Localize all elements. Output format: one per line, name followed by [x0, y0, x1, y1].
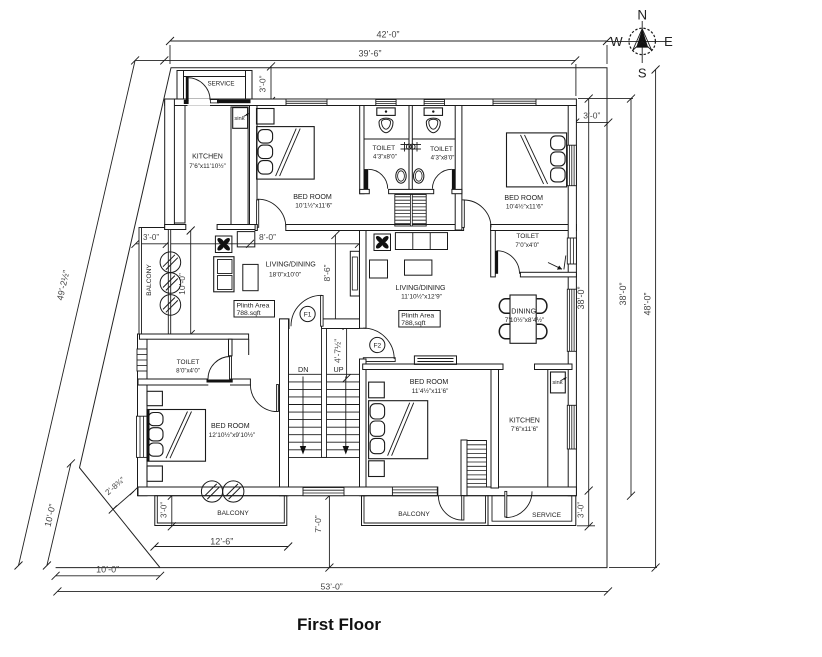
svg-text:7’-0”: 7’-0” [313, 515, 323, 532]
svg-text:7’6”x11’10½”: 7’6”x11’10½” [189, 162, 225, 170]
svg-text:sink: sink [552, 380, 562, 386]
svg-text:3’-0”: 3’-0” [577, 502, 586, 518]
svg-text:11’10½”x12’9”: 11’10½”x12’9” [401, 293, 442, 301]
svg-text:38’-0”: 38’-0” [618, 282, 628, 305]
svg-text:39’-6”: 39’-6” [358, 49, 381, 59]
svg-text:8’-6”: 8’-6” [322, 264, 332, 281]
svg-text:Plinth Area: Plinth Area [237, 303, 270, 310]
svg-text:F2: F2 [373, 343, 381, 350]
svg-text:DN: DN [298, 365, 308, 374]
svg-text:First Floor: First Floor [297, 615, 381, 634]
svg-text:10’1½”x11’6”: 10’1½”x11’6” [295, 201, 332, 209]
svg-text:BALCONY: BALCONY [398, 511, 430, 518]
svg-text:N: N [637, 8, 647, 23]
svg-text:Plinth Area: Plinth Area [401, 313, 434, 320]
svg-text:53’-0”: 53’-0” [320, 582, 342, 592]
svg-text:SERVICE: SERVICE [532, 512, 561, 519]
svg-text:E: E [664, 34, 673, 49]
svg-text:BALCONY: BALCONY [146, 264, 153, 296]
svg-text:4’3”x8’0”: 4’3”x8’0” [431, 155, 455, 162]
svg-text:788,sqft: 788,sqft [401, 320, 425, 327]
svg-text:DINING: DINING [511, 308, 536, 316]
svg-text:TOILET: TOILET [372, 145, 395, 152]
svg-text:LIVING/DINING: LIVING/DINING [395, 284, 445, 292]
svg-text:TOILET: TOILET [516, 233, 539, 240]
svg-text:7’10½”x8’4½”: 7’10½”x8’4½” [505, 316, 544, 324]
svg-text:BED ROOM: BED ROOM [293, 193, 332, 201]
svg-text:UP: UP [334, 365, 344, 374]
svg-text:BED ROOM: BED ROOM [410, 378, 449, 386]
svg-text:3’-0”: 3’-0” [143, 233, 159, 242]
svg-text:BED ROOM: BED ROOM [504, 194, 543, 202]
svg-text:42’-0”: 42’-0” [376, 30, 399, 40]
svg-text:18’0”x10’0”: 18’0”x10’0” [269, 272, 301, 279]
svg-text:TOILET: TOILET [430, 146, 453, 153]
svg-text:F1: F1 [304, 312, 312, 319]
svg-text:KITCHEN: KITCHEN [509, 418, 540, 425]
svg-text:7’0”x4’0”: 7’0”x4’0” [515, 242, 539, 249]
svg-text:12’-6”: 12’-6” [210, 536, 233, 546]
svg-text:TOILET: TOILET [177, 359, 200, 366]
svg-text:10’4½”x11’6”: 10’4½”x11’6” [506, 203, 543, 211]
svg-text:8’-0”: 8’-0” [259, 232, 276, 242]
svg-text:LIVING/DINING: LIVING/DINING [266, 261, 316, 269]
svg-text:8’0”x4’0”: 8’0”x4’0” [176, 368, 200, 375]
svg-text:S: S [638, 66, 647, 81]
svg-text:BALCONY: BALCONY [217, 510, 249, 517]
svg-text:W: W [610, 34, 623, 49]
svg-text:48’-0”: 48’-0” [643, 292, 653, 315]
svg-text:SERVICE: SERVICE [207, 81, 234, 88]
svg-text:38’-0”: 38’-0” [576, 286, 586, 309]
svg-text:3’-0”: 3’-0” [583, 111, 600, 121]
svg-text:7’6”x11’6”: 7’6”x11’6” [511, 426, 539, 433]
svg-text:12’10½”x9’10½”: 12’10½”x9’10½” [209, 431, 256, 439]
svg-text:10’-0”: 10’-0” [96, 565, 119, 575]
svg-text:4’3”x8’0”: 4’3”x8’0” [373, 154, 397, 161]
svg-text:4’-7½”: 4’-7½” [333, 339, 343, 363]
svg-text:sink: sink [234, 116, 244, 122]
svg-text:3’-0”: 3’-0” [160, 502, 169, 518]
svg-text:3’-0”: 3’-0” [258, 75, 268, 92]
svg-text:KITCHEN: KITCHEN [192, 154, 223, 161]
svg-text:BED ROOM: BED ROOM [211, 422, 250, 430]
svg-text:788.sqft: 788.sqft [237, 310, 261, 317]
svg-text:11’4½”x11’6”: 11’4½”x11’6” [412, 387, 449, 395]
